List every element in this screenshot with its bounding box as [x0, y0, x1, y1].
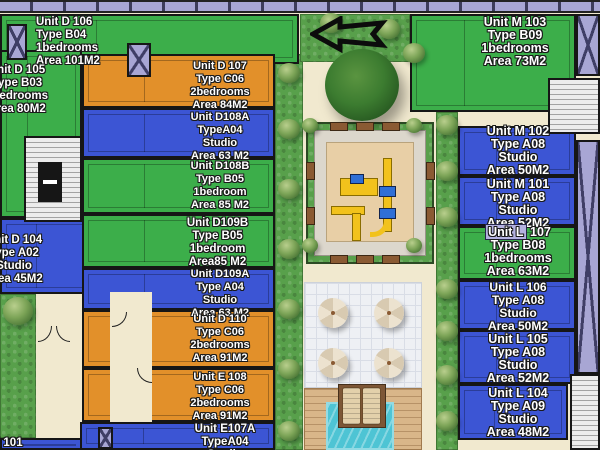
bench: [426, 162, 435, 180]
playground-equipment: [379, 208, 396, 219]
door-arc: [38, 326, 52, 342]
tree-icon: [302, 118, 318, 133]
unit-label-e107a[interactable]: Unit E107ATypeA04Studio: [165, 423, 285, 450]
unit-label-m102[interactable]: Unit M 102Type A08StudioArea 50M2: [462, 125, 574, 177]
bench: [356, 122, 374, 131]
bench: [382, 255, 400, 264]
tree-icon: [302, 238, 318, 253]
tree-icon: [3, 297, 33, 325]
umbrella-icon: [374, 298, 404, 328]
left-arrow-icon: [310, 16, 388, 59]
unit-label-d104[interactable]: Unit D 104Type A02StudioArea 45M2: [0, 234, 73, 286]
bench: [356, 255, 374, 264]
door-arc: [56, 326, 70, 342]
umbrella-icon: [318, 348, 348, 378]
playground-equipment: [379, 186, 396, 197]
playground-equipment: [352, 213, 361, 241]
elevator-shaft: [7, 24, 27, 60]
unit-label-d109b[interactable]: Unit D109BType B051bedroomArea85 M2: [155, 217, 280, 269]
bench: [330, 255, 348, 264]
unit-label-d105[interactable]: Unit D 105Type B031bedroomsArea 80M2: [0, 64, 76, 116]
bench: [306, 162, 315, 180]
unit-label-d110[interactable]: Unit D 110Type C062bedroomsArea 91M2: [160, 313, 280, 365]
floor-plan: Unit D 106Type B041bedroomsArea 101M2Uni…: [0, 0, 600, 450]
bench: [382, 122, 400, 131]
unit-label-m103[interactable]: Unit M 103Type B091bedroomsArea 73M2: [455, 16, 575, 68]
umbrella-icon: [318, 298, 348, 328]
boundary-band: [0, 0, 600, 13]
tree-icon: [406, 238, 422, 253]
large-tree-icon: [325, 49, 399, 121]
staircase: [570, 374, 600, 450]
bench: [330, 122, 348, 131]
unit-label-d106[interactable]: Unit D 106Type B041bedroomsArea 101M2: [36, 16, 156, 68]
unit-label-e108[interactable]: Unit E 108Type C062bedroomsArea 91M2: [160, 371, 280, 423]
playground-equipment: [350, 174, 364, 184]
unit-label-l106[interactable]: Unit L 106Type A08StudioArea 50M2: [462, 281, 574, 333]
elevator-shaft: [576, 14, 600, 76]
unit-label-e101[interactable]: Unit E 101: [0, 437, 77, 450]
tree-icon: [406, 118, 422, 133]
umbrella-icon: [374, 348, 404, 378]
unit-label-m101[interactable]: Unit M 101Type A08StudioArea 52M2: [462, 178, 574, 230]
unit-label-d108b[interactable]: Unit D108BType B051bedroomArea 85 M2: [160, 160, 280, 212]
unit-label-l105[interactable]: Unit L 105Type A08StudioArea 52M2: [462, 333, 574, 385]
unit-label-l104[interactable]: Unit L 104Type A09StudioArea 48M2: [462, 387, 574, 439]
sun-lounger-icon: [342, 387, 361, 425]
bench: [426, 207, 435, 225]
elevator-shaft: [576, 140, 600, 374]
bench: [306, 207, 315, 225]
unit-label-l107[interactable]: Unit L 107Type B081bedroomsArea 63M2: [462, 226, 574, 278]
elevator-shaft: [98, 427, 113, 449]
elevator-icon: [38, 162, 62, 202]
unit-label-d107[interactable]: Unit D 107Type C062bedroomsArea 84M2: [160, 60, 280, 112]
sun-lounger-icon: [362, 387, 381, 425]
unit-label-d108a[interactable]: Unit D108ATypeA04StudioArea 63 M2: [160, 111, 280, 163]
